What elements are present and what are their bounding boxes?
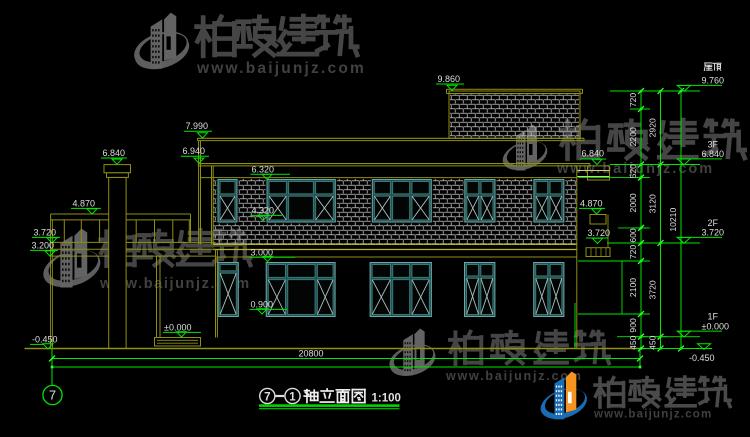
svg-text:7.990: 7.990 bbox=[186, 121, 209, 131]
svg-text:3.200: 3.200 bbox=[32, 241, 55, 251]
svg-text:4.870: 4.870 bbox=[580, 199, 603, 209]
svg-text:4.320: 4.320 bbox=[252, 206, 275, 216]
svg-text:450: 450 bbox=[628, 335, 638, 350]
svg-text:7: 7 bbox=[49, 388, 56, 403]
svg-text:3120: 3120 bbox=[648, 194, 658, 213]
svg-text:3F: 3F bbox=[708, 140, 719, 150]
svg-text:-0.450: -0.450 bbox=[32, 335, 58, 345]
svg-text:3.720: 3.720 bbox=[702, 228, 725, 238]
svg-text:3.720: 3.720 bbox=[588, 228, 611, 238]
svg-text:450: 450 bbox=[648, 335, 658, 350]
svg-text:±0.000: ±0.000 bbox=[702, 321, 729, 331]
svg-text:www.baijunjz.com: www.baijunjz.com bbox=[593, 409, 712, 421]
svg-text:±0.000: ±0.000 bbox=[164, 323, 191, 333]
svg-text:9.760: 9.760 bbox=[702, 76, 725, 86]
svg-text:3720: 3720 bbox=[648, 280, 658, 299]
svg-text:1: 1 bbox=[289, 391, 296, 403]
svg-text:720: 720 bbox=[628, 93, 638, 108]
svg-text:600: 600 bbox=[628, 228, 638, 243]
svg-text:0.900: 0.900 bbox=[251, 300, 274, 310]
svg-text:2100: 2100 bbox=[628, 278, 638, 297]
svg-text:10210: 10210 bbox=[668, 208, 678, 232]
svg-text:720: 720 bbox=[628, 245, 638, 260]
svg-text:7: 7 bbox=[264, 391, 270, 403]
svg-text:6.840: 6.840 bbox=[103, 148, 126, 158]
svg-text:6.320: 6.320 bbox=[252, 165, 275, 175]
svg-text:6.840: 6.840 bbox=[702, 149, 725, 159]
svg-text:6.940: 6.940 bbox=[183, 146, 206, 156]
svg-text:2F: 2F bbox=[708, 218, 719, 228]
svg-text:2000: 2000 bbox=[628, 193, 638, 212]
svg-text:2200: 2200 bbox=[628, 127, 638, 146]
svg-text:900: 900 bbox=[628, 318, 638, 333]
svg-text:9.860: 9.860 bbox=[438, 74, 461, 84]
svg-text:20800: 20800 bbox=[298, 349, 323, 359]
svg-text:6.840: 6.840 bbox=[582, 149, 605, 159]
svg-text:520: 520 bbox=[628, 164, 638, 179]
svg-text:3.720: 3.720 bbox=[34, 228, 57, 238]
svg-text:2920: 2920 bbox=[648, 118, 658, 137]
svg-text:1F: 1F bbox=[708, 312, 719, 322]
svg-text:-0.450: -0.450 bbox=[689, 353, 715, 363]
svg-text:www.baijunjz.com: www.baijunjz.com bbox=[196, 60, 366, 77]
svg-text:1:100: 1:100 bbox=[372, 393, 401, 405]
svg-text:4.870: 4.870 bbox=[73, 199, 96, 209]
